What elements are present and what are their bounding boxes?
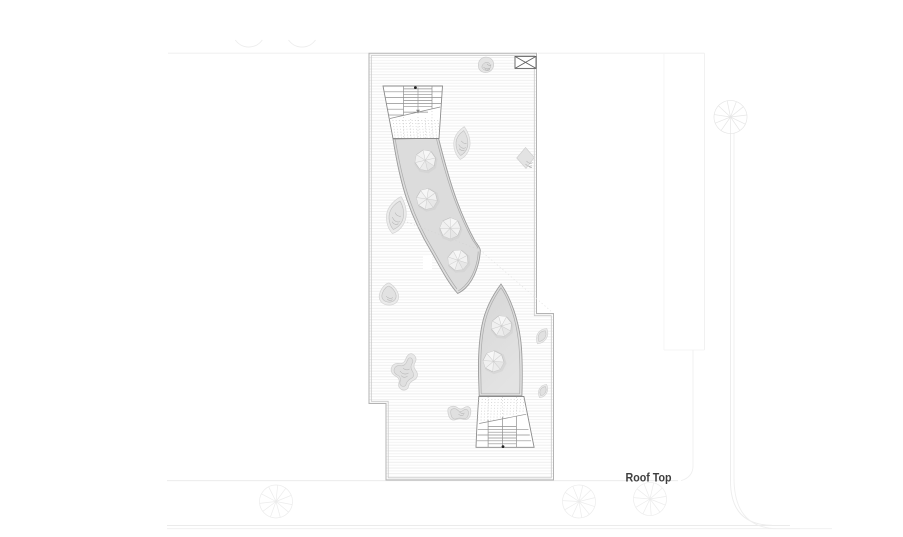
svg-text:Roof Top: Roof Top <box>626 471 672 485</box>
